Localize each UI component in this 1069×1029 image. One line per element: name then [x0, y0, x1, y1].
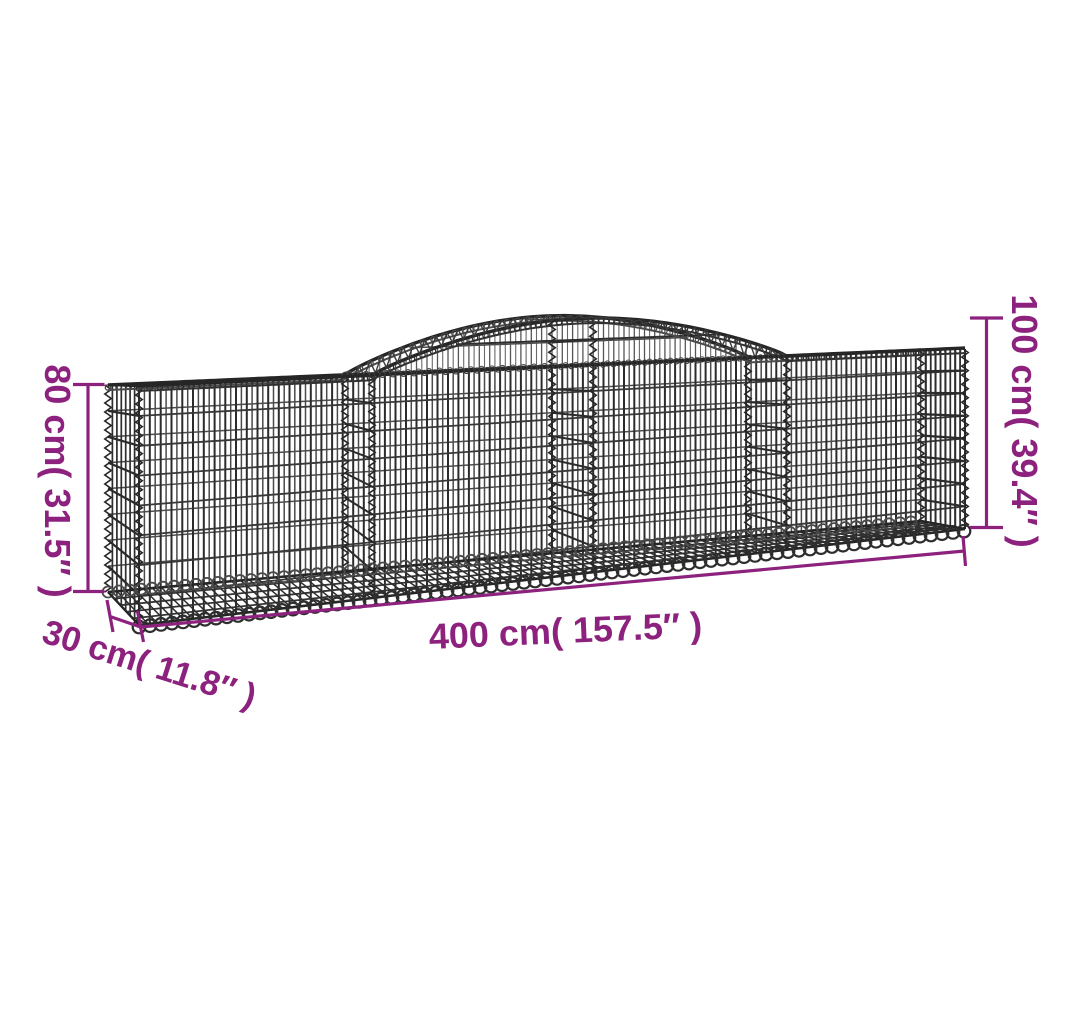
svg-text:100 cm( 39.4″ ): 100 cm( 39.4″ ) — [1004, 294, 1045, 547]
svg-text:80 cm( 31.5″ ): 80 cm( 31.5″ ) — [37, 364, 78, 597]
